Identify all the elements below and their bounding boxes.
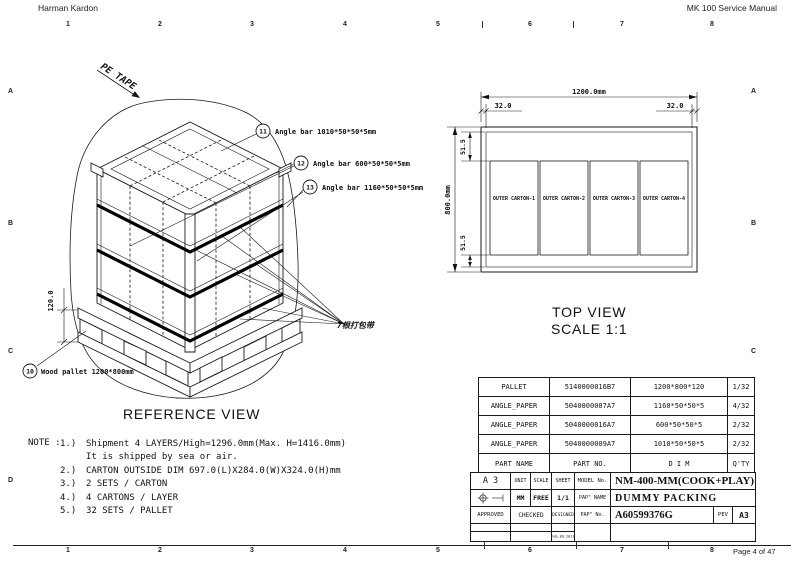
- balloon-13-num: 13: [306, 184, 314, 192]
- cell-no: 5140000016B7: [550, 378, 631, 397]
- callout-13-label: Angle bar 1160*50*50*5mm: [322, 184, 423, 192]
- sheet-size: A 3: [471, 473, 511, 490]
- col-header-no: PART NO.: [550, 454, 631, 473]
- dim-800: 800.0mm: [444, 185, 452, 215]
- rev-value: A3: [733, 507, 755, 524]
- strap-count-label: 7根打包带: [337, 321, 376, 330]
- paper-no-value: A60599376G: [611, 507, 714, 524]
- callout-11-label: Angle bar 1010*50*50*5mm: [275, 128, 376, 136]
- ruler-bottom-tick: [576, 542, 577, 549]
- carton-4-label: OUTER CARTON-4: [643, 196, 685, 202]
- unit-value: MM: [511, 490, 531, 507]
- ruler-bottom-6: 6: [523, 547, 537, 554]
- checked-sign-cell: [511, 524, 552, 532]
- model-label: MODEL No.: [575, 473, 611, 490]
- paper-name-label: PAP" NAME: [575, 490, 611, 507]
- cell-name: ANGLE_PAPER: [479, 416, 550, 435]
- page-number: Page 4 of 47: [733, 547, 776, 556]
- carton-4: [640, 161, 688, 255]
- callout-10-label: Wood pallet 1200*800mm: [41, 368, 134, 376]
- carton-3: [590, 161, 638, 255]
- approved-sign-cell: [471, 524, 511, 532]
- reference-view-title: REFERENCE VIEW: [123, 406, 260, 422]
- rev-label: PEV: [714, 507, 733, 524]
- design-date: Feb.09.2011: [552, 534, 575, 538]
- sheet-bottom-border: [13, 545, 791, 546]
- title-block: A 3 UNIT SCALE SHEET MODEL No. NM-400-MM…: [470, 472, 756, 542]
- cell-qty: 1/32: [728, 378, 754, 397]
- col-header-dim: D I M: [631, 454, 728, 473]
- sheet-label: SHEET: [552, 473, 575, 490]
- note-item: 4.)4 CARTONS / LAYER: [60, 492, 346, 505]
- designed-label: DESIGNED: [552, 507, 575, 524]
- designed-date-cell: Feb.09.2011: [552, 532, 575, 541]
- top-view-scale: SCALE 1:1: [551, 321, 627, 337]
- empty-cell: [611, 524, 755, 541]
- cell-no: 5040000016A7: [550, 416, 631, 435]
- dim-120: 120.0: [47, 290, 55, 311]
- cell-name: ANGLE_PAPER: [479, 397, 550, 416]
- carton-1-label: OUTER CARTON-1: [493, 196, 535, 202]
- dim-1200: 1200.0mm: [572, 88, 606, 96]
- note-item: It is shipped by sea or air.: [60, 451, 346, 464]
- pe-tape-label: PE TAPE: [98, 61, 138, 92]
- dim-32-right: 32.0: [667, 102, 684, 110]
- projection-symbol-cell: [471, 490, 511, 507]
- cell-qty: 2/32: [728, 416, 754, 435]
- note-item: 3.)2 SETS / CARTON: [60, 478, 346, 491]
- cell-dim: 1160*50*50*5: [631, 397, 728, 416]
- balloon-11-num: 11: [259, 128, 267, 136]
- ruler-bottom-4: 4: [338, 547, 352, 554]
- top-view-title: TOP VIEW: [552, 304, 626, 320]
- cell-qty: 2/32: [728, 435, 754, 454]
- front-corner-bar: [185, 214, 195, 352]
- ruler-bottom-3: 3: [245, 547, 259, 554]
- unit-label: UNIT: [511, 473, 531, 490]
- sheet-value: 1/1: [552, 490, 575, 507]
- cell-name: ANGLE_PAPER: [479, 435, 550, 454]
- paper-no-label: PAP" No.: [575, 507, 611, 524]
- notes-label: NOTE :: [28, 438, 61, 448]
- carton-2-label: OUTER CARTON-2: [543, 196, 585, 202]
- approved-date-cell: [471, 532, 511, 541]
- ruler-bottom-8: 8: [705, 547, 719, 554]
- cell-dim: 600*50*50*5: [631, 416, 728, 435]
- checked-label: CHECKED: [511, 507, 552, 524]
- note-item: 2.)CARTON OUTSIDE DIM 697.0(L)X284.0(W)X…: [60, 465, 346, 478]
- paper-name-value: DUMMY PACKING: [611, 490, 755, 507]
- cell-name: PALLET: [479, 378, 550, 397]
- ruler-bottom-5: 5: [431, 547, 445, 554]
- approved-label: APPROVED: [471, 507, 511, 524]
- col-header-qty: Q'TY: [728, 454, 754, 473]
- balloon-10-num: 10: [26, 368, 34, 376]
- cell-qty: 4/32: [728, 397, 754, 416]
- top-view-drawing: OUTER CARTON-1 OUTER CARTON-2 OUTER CART…: [444, 88, 700, 272]
- cell-dim: 1010*50*50*5: [631, 435, 728, 454]
- ruler-bottom-tick: [668, 542, 669, 549]
- notes-list: 1.)Shipment 4 LAYERS/High=1296.0mm(Max. …: [60, 438, 346, 518]
- dim-51-top: 51.5: [459, 139, 467, 155]
- ruler-bottom-2: 2: [153, 547, 167, 554]
- note-item: 5.)32 SETS / PALLET: [60, 505, 346, 518]
- note-item: 1.)Shipment 4 LAYERS/High=1296.0mm(Max. …: [60, 438, 346, 451]
- empty-cell: [575, 524, 611, 541]
- first-angle-projection-icon: [476, 492, 506, 504]
- designed-sign-cell: [552, 524, 575, 532]
- balloon-12-num: 12: [297, 160, 305, 168]
- carton-1: [490, 161, 538, 255]
- callout-12-label: Angle bar 600*50*50*5mm: [313, 160, 410, 168]
- carton-2: [540, 161, 588, 255]
- col-header-name: PART NAME: [479, 454, 550, 473]
- dim-51-bottom: 51.5: [459, 235, 467, 251]
- parts-table: PALLET 5140000016B7 1200*800*120 1/32 AN…: [478, 377, 755, 474]
- scale-value: FREE: [531, 490, 552, 507]
- scale-label: SCALE: [531, 473, 552, 490]
- ruler-bottom-7: 7: [615, 547, 629, 554]
- reference-view-drawing: 7根打包带 11 12 13 10 Angle bar 1010*50*50*5…: [23, 61, 423, 398]
- manual-page: Harman Kardon MK 100 Service Manual 1 2 …: [0, 0, 793, 561]
- carton-3-label: OUTER CARTON-3: [593, 196, 635, 202]
- dim-32-left: 32.0: [495, 102, 512, 110]
- cell-no: 5040000009A7: [550, 435, 631, 454]
- ruler-bottom-1: 1: [61, 547, 75, 554]
- cell-no: 5040000007A7: [550, 397, 631, 416]
- ruler-bottom-tick: [484, 542, 485, 549]
- model-number: NM-400-MM(COOK+PLAY): [611, 473, 755, 490]
- checked-date-cell: [511, 532, 552, 541]
- carton-stack: [91, 122, 291, 352]
- cell-dim: 1200*800*120: [631, 378, 728, 397]
- pallet-height-dimension: [57, 288, 78, 345]
